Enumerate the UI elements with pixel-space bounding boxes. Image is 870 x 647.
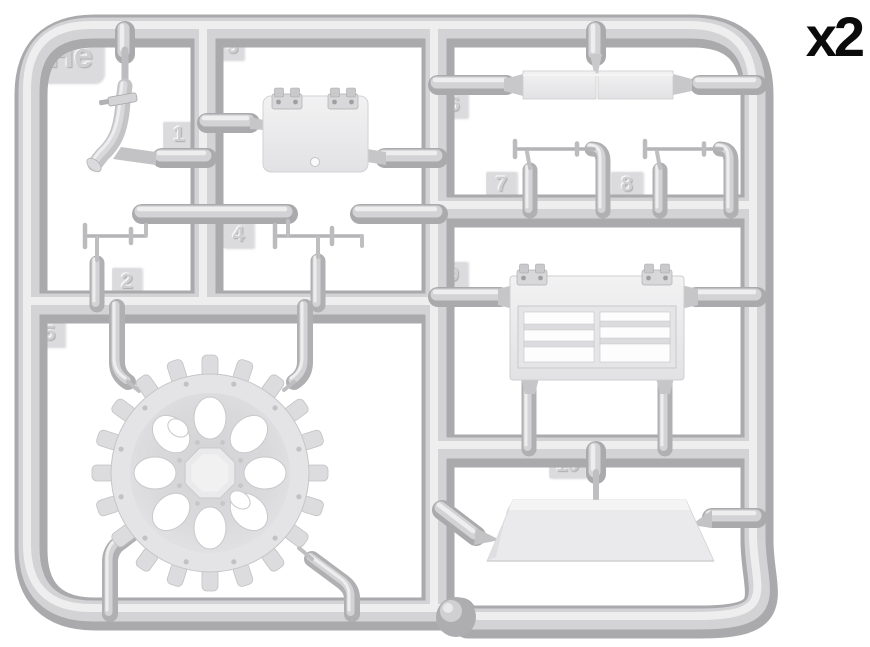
part-3-hatch-panel — [250, 88, 386, 172]
runner-junction-ball — [436, 597, 476, 637]
part-1-exhaust-pipe — [84, 50, 156, 174]
part-5-drive-sprocket — [92, 355, 328, 591]
part-6-planks — [504, 54, 692, 99]
sprocket-hub-face — [192, 455, 229, 492]
sprue-sheet: He 12345678910 — [0, 0, 870, 647]
part-10-trapezoid-plate — [474, 472, 714, 561]
part-9-grille-hatch — [498, 264, 698, 394]
quantity-label: x2 — [806, 4, 862, 69]
sprue-illustration — [0, 0, 870, 647]
